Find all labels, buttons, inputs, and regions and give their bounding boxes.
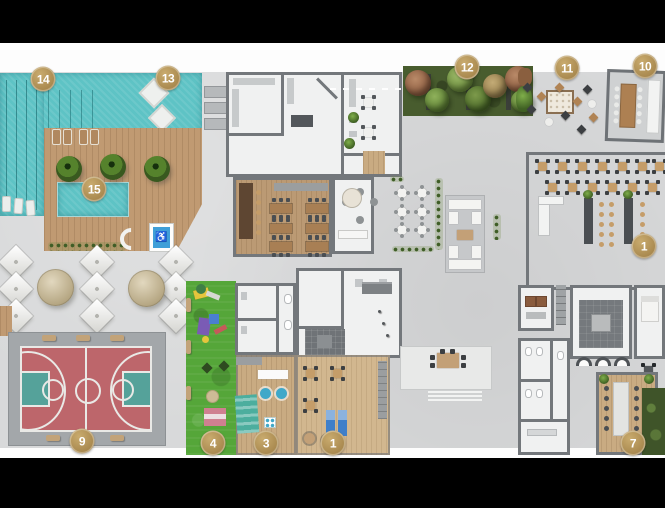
marker-11[interactable]: 11 (555, 56, 580, 81)
marker-1[interactable]: 1 (321, 431, 346, 456)
marker-9[interactable]: 9 (70, 429, 95, 454)
marker-12[interactable]: 12 (455, 55, 480, 80)
marker-14[interactable]: 14 (31, 67, 56, 92)
letterbox-bottom (0, 458, 665, 508)
marker-4[interactable]: 4 (201, 431, 226, 456)
marker-10[interactable]: 10 (633, 54, 658, 79)
marker-3[interactable]: 3 (254, 431, 279, 456)
marker-7[interactable]: 7 (621, 431, 646, 456)
marker-15[interactable]: 15 (82, 177, 107, 202)
marker-1[interactable]: 1 (632, 234, 657, 259)
amenities-floor-plan: ♿ (0, 0, 665, 508)
markers-layer: 141315121110194317 (0, 0, 665, 508)
marker-13[interactable]: 13 (156, 66, 181, 91)
letterbox-top (0, 0, 665, 43)
